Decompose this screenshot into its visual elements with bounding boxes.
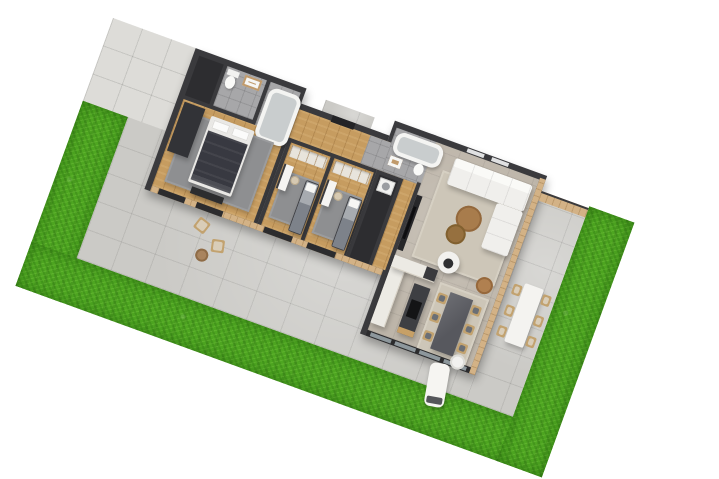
cooktop-icon <box>406 299 422 320</box>
armchair-seat-cushion <box>442 257 455 270</box>
property-plot <box>16 18 640 477</box>
floor-plan-render <box>0 0 719 479</box>
patio-lounge-chair <box>210 239 225 254</box>
